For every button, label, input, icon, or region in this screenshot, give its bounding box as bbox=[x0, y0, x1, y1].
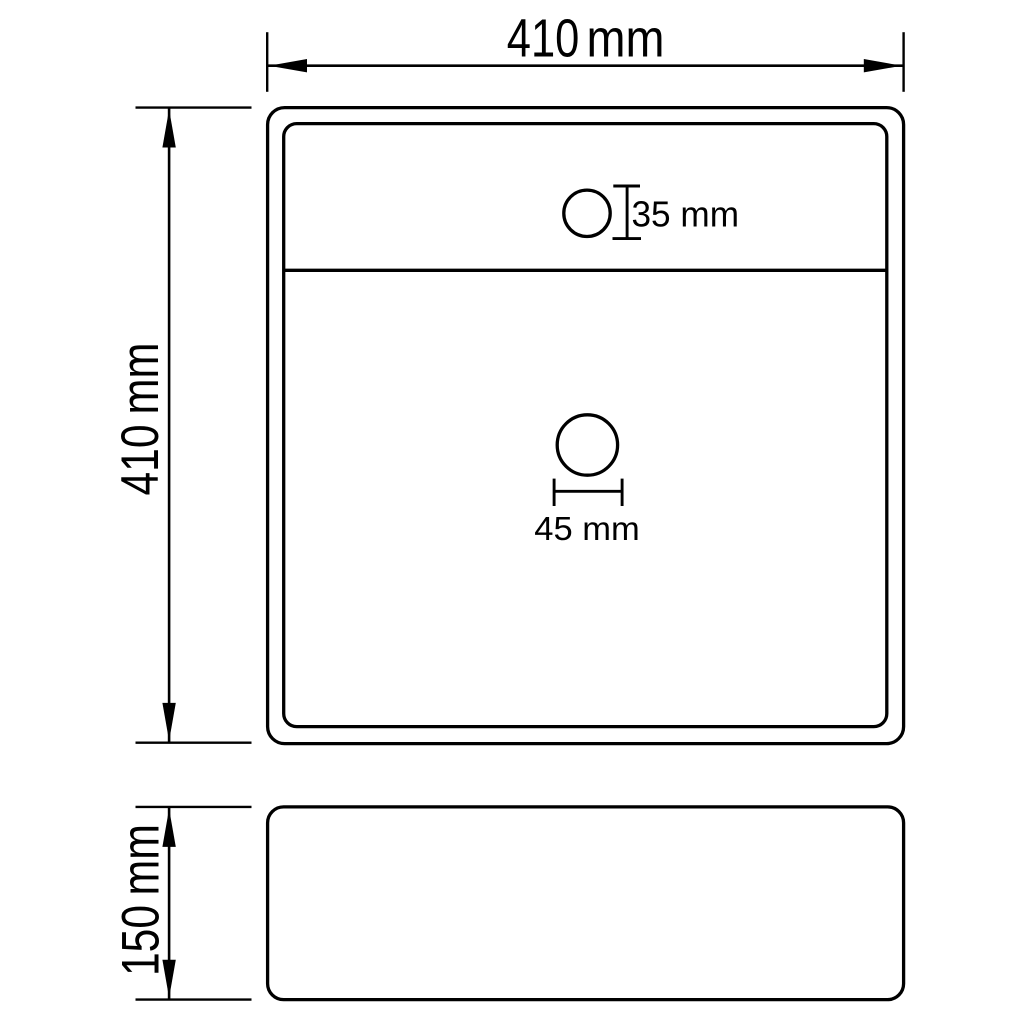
svg-text:150: 150 bbox=[111, 905, 170, 976]
svg-text:mm: mm bbox=[111, 343, 170, 415]
svg-text:35 mm: 35 mm bbox=[632, 193, 740, 234]
svg-text:mm: mm bbox=[111, 824, 170, 896]
svg-text:45 mm: 45 mm bbox=[534, 510, 640, 547]
svg-text:410: 410 bbox=[111, 425, 170, 496]
svg-text:410: 410 bbox=[507, 10, 580, 69]
svg-text:mm: mm bbox=[587, 10, 665, 69]
